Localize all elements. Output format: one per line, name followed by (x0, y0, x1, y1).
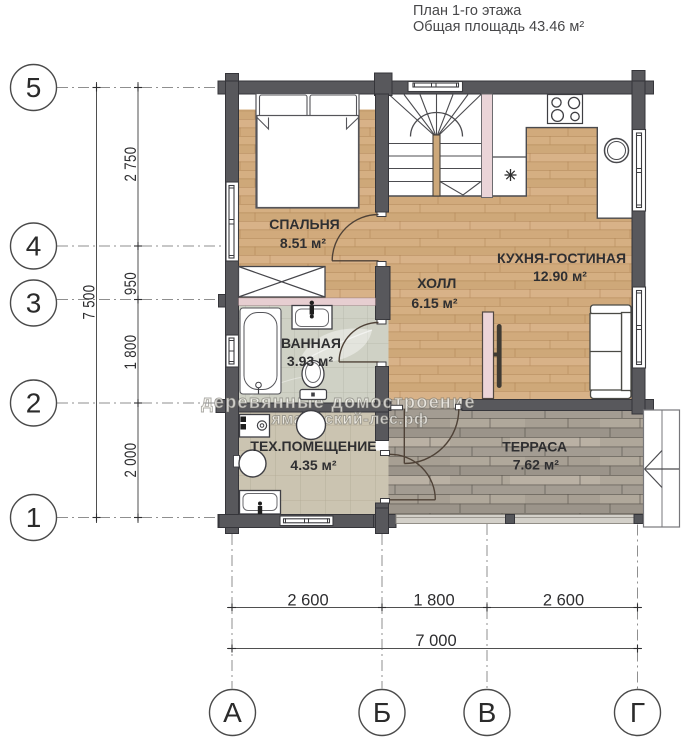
svg-text:2 000: 2 000 (122, 442, 141, 477)
svg-text:2: 2 (26, 388, 42, 419)
svg-text:2 750: 2 750 (122, 146, 141, 181)
svg-text:КУХНЯ-ГОСТИНАЯ: КУХНЯ-ГОСТИНАЯ (497, 250, 626, 266)
svg-text:3: 3 (26, 288, 42, 319)
svg-text:2 600: 2 600 (287, 592, 328, 610)
svg-text:3.93 м²: 3.93 м² (287, 353, 333, 369)
svg-text:План 1-го этажа: План 1-го этажа (413, 3, 522, 19)
svg-text:ТЕХ.ПОМЕЩЕНИЕ: ТЕХ.ПОМЕЩЕНИЕ (250, 438, 376, 454)
svg-text:Общая площадь 43.46 м²: Общая площадь 43.46 м² (413, 19, 584, 35)
svg-text:4: 4 (26, 231, 42, 262)
svg-text:ТЕРРАСА: ТЕРРАСА (502, 439, 567, 455)
svg-text:Г: Г (630, 697, 645, 728)
svg-text:12.90 м²: 12.90 м² (533, 268, 587, 284)
svg-text:ХОЛЛ: ХОЛЛ (417, 275, 456, 291)
svg-text:Б: Б (373, 697, 391, 728)
svg-text:4.35 м²: 4.35 м² (290, 457, 336, 473)
svg-text:8.51 м²: 8.51 м² (280, 235, 326, 251)
svg-text:1: 1 (26, 502, 42, 533)
svg-text:1 800: 1 800 (413, 592, 454, 610)
svg-text:5: 5 (26, 72, 42, 103)
svg-text:ВАННАЯ: ВАННАЯ (281, 335, 341, 351)
svg-text:деревянные домостроение: деревянные домостроение (201, 392, 476, 412)
svg-text:7.62 м²: 7.62 м² (513, 457, 559, 473)
svg-text:А: А (223, 697, 242, 728)
svg-text:2 600: 2 600 (543, 592, 584, 610)
svg-text:В: В (478, 697, 497, 728)
svg-text:950: 950 (122, 272, 141, 295)
svg-text:7 500: 7 500 (80, 284, 99, 319)
svg-text:1 800: 1 800 (122, 334, 141, 369)
svg-text:7 000: 7 000 (415, 632, 456, 650)
svg-text:СПАЛЬНЯ: СПАЛЬНЯ (269, 216, 340, 232)
svg-text:6.15 м²: 6.15 м² (411, 295, 457, 311)
